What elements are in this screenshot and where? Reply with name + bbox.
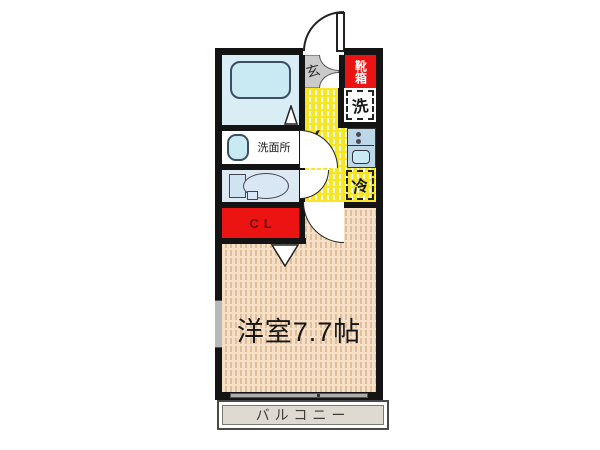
floorplan-canvas: 洋室7.7帖 K 玄 靴箱 洗 冷 洗面所 bbox=[0, 0, 600, 450]
shoe-box-label: 靴箱 bbox=[355, 60, 367, 84]
kitchen-counter bbox=[347, 128, 376, 168]
toilet-base-icon bbox=[247, 191, 258, 200]
washer-label: 洗 bbox=[350, 92, 369, 118]
fridge-label: 冷 bbox=[350, 172, 371, 199]
main-room-label: 洋室7.7帖 bbox=[222, 312, 376, 346]
washroom-sink-icon bbox=[227, 134, 249, 161]
washroom-label: 洗面所 bbox=[249, 139, 299, 155]
wall-kitchen-bottom bbox=[340, 202, 383, 208]
left-wall-window bbox=[215, 300, 222, 348]
bathtub-icon bbox=[230, 61, 291, 99]
washer-dashed-box: 洗 bbox=[346, 90, 374, 120]
shoe-box: 靴箱 bbox=[345, 55, 376, 88]
fridge-dashed-box: 冷 bbox=[346, 170, 374, 200]
closet-label: CL bbox=[244, 216, 276, 231]
main-room-label-text: 洋室7.7帖 bbox=[237, 310, 362, 349]
wall-right bbox=[376, 48, 383, 400]
stove-section bbox=[348, 129, 374, 146]
counter-sink-icon bbox=[352, 150, 370, 164]
wall-top-left bbox=[215, 48, 303, 55]
entrance-door-leaf bbox=[336, 12, 345, 52]
burner-dot-icon bbox=[356, 139, 361, 144]
balcony-window bbox=[230, 393, 368, 398]
balcony-area: バルコニー bbox=[222, 405, 384, 425]
balcony-label: バルコニー bbox=[256, 405, 351, 425]
burner-dot-icon bbox=[356, 132, 361, 137]
bath-door-triangle-icon bbox=[284, 105, 298, 125]
closet-door-triangle-icon bbox=[271, 244, 299, 267]
washroom-label-text: 洗面所 bbox=[258, 139, 291, 155]
balcony-outer: バルコニー bbox=[217, 400, 389, 430]
balcony-window-divider bbox=[317, 394, 320, 397]
closet: CL bbox=[222, 208, 299, 238]
